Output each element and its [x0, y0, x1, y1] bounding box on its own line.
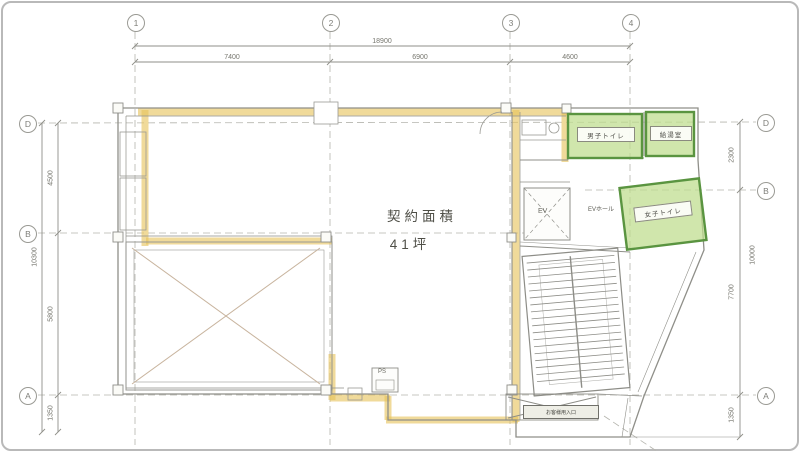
floor-plan-drawing	[0, 0, 800, 452]
pipe-shaft-label: PS	[378, 369, 386, 375]
leased-boundary-highlight	[138, 110, 567, 422]
dim-left-total: 10300	[32, 247, 39, 266]
grid-bubble-col-1: 1	[127, 14, 145, 32]
contract-area-label: 契約面積	[387, 205, 457, 225]
columns	[113, 103, 571, 395]
grid-bubble-row-a-left: A	[19, 387, 37, 405]
dim-left-seg-1: 4500	[48, 170, 55, 186]
grid-bubble-row-b-right: B	[757, 182, 775, 200]
grid-bubble-col-3: 3	[502, 14, 520, 32]
mens-toilet-label: 男子トイレ	[577, 127, 635, 142]
dim-right-seg-1: 2300	[729, 147, 736, 163]
dim-top-seg-1: 7400	[224, 54, 240, 61]
dim-left-seg-2: 5800	[48, 306, 55, 322]
grid-bubble-row-a-right: A	[757, 387, 775, 405]
elevator-label: EV	[538, 208, 547, 215]
contract-area-value: 41坪	[390, 233, 431, 253]
dim-right-total: 10000	[750, 245, 757, 264]
dim-left-below: 1350	[48, 405, 55, 421]
floor-plan-image: 1 2 3 4 D B A D B A 18900 7400 6900 4600…	[0, 0, 800, 452]
void-box	[126, 242, 332, 390]
dim-top-seg-2: 6900	[412, 54, 428, 61]
entrance-note-label: お客様用入口	[523, 405, 599, 419]
dim-right-seg-2: 7700	[729, 284, 736, 300]
dim-top-seg-3: 4600	[562, 54, 578, 61]
dim-top-total: 18900	[372, 38, 391, 45]
staircase	[522, 248, 630, 396]
grid-bubble-row-d-left: D	[19, 115, 37, 133]
ev-hall-label: EVホール	[588, 204, 614, 213]
kitchenette-label: 給湯室	[650, 126, 692, 141]
dim-right-below: 1350	[729, 407, 736, 423]
fixtures	[120, 102, 566, 400]
grid-bubble-row-b-left: B	[19, 225, 37, 243]
grid-bubble-col-4: 4	[622, 14, 640, 32]
grid-bubble-row-d-right: D	[757, 114, 775, 132]
grid-bubble-col-2: 2	[322, 14, 340, 32]
